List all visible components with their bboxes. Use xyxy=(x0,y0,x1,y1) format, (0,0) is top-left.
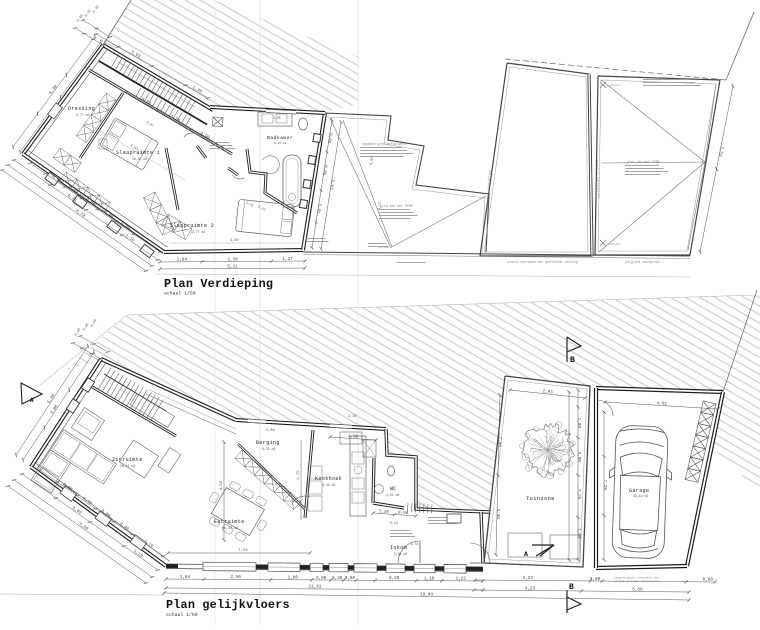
svg-text:plat dak met EPDM: plat dak met EPDM xyxy=(627,160,660,164)
svg-text:7,28: 7,28 xyxy=(602,480,607,491)
svg-text:9,32 m2: 9,32 m2 xyxy=(322,483,335,487)
svg-text:Berging: Berging xyxy=(256,440,280,446)
svg-text:1,05: 1,05 xyxy=(273,116,281,120)
svg-text:4,80: 4,80 xyxy=(230,239,239,243)
svg-text:1,75: 1,75 xyxy=(297,470,301,480)
svg-text:1,00: 1,00 xyxy=(576,418,581,429)
svg-text:Plan Verdieping: Plan Verdieping xyxy=(164,277,273,291)
svg-text:3,50: 3,50 xyxy=(495,509,500,520)
svg-text:aangestampte keerwand met: aangestampte keerwand met xyxy=(614,576,659,580)
svg-text:1,84: 1,84 xyxy=(180,575,191,580)
svg-text:stalen keerwand met gekleefde: stalen keerwand met gekleefde roofing xyxy=(507,260,578,264)
svg-text:2,88: 2,88 xyxy=(266,429,275,433)
svg-text:19,04: 19,04 xyxy=(420,592,433,597)
svg-text:B: B xyxy=(570,356,575,365)
svg-text:4,50: 4,50 xyxy=(220,480,224,490)
svg-text:1,80: 1,80 xyxy=(288,576,299,581)
svg-text:7,50: 7,50 xyxy=(497,437,502,448)
svg-text:opgaand gevelmetselwerk: opgaand gevelmetselwerk xyxy=(362,142,406,146)
svg-text:Slaapruimte 2: Slaapruimte 2 xyxy=(170,223,214,229)
svg-text:5,21: 5,21 xyxy=(227,264,238,269)
svg-text:0,20: 0,20 xyxy=(389,576,400,581)
svg-text:potgrond zandgrond: potgrond zandgrond xyxy=(625,260,660,264)
svg-text:WC: WC xyxy=(390,486,396,492)
svg-text:9,45 m2: 9,45 m2 xyxy=(274,142,287,145)
svg-text:7,25: 7,25 xyxy=(576,489,581,500)
svg-text:Badkamer: Badkamer xyxy=(267,135,293,141)
svg-text:3,00: 3,00 xyxy=(576,452,581,463)
svg-text:1,80: 1,80 xyxy=(576,528,581,539)
svg-text:0,80: 0,80 xyxy=(703,578,714,583)
svg-text:5,91 m2: 5,91 m2 xyxy=(394,552,407,556)
svg-text:4,63: 4,63 xyxy=(656,401,667,407)
svg-text:2,50: 2,50 xyxy=(231,575,242,580)
svg-text:grid dak met EPDM: grid dak met EPDM xyxy=(380,204,413,208)
svg-text:1,10: 1,10 xyxy=(424,577,435,582)
svg-text:0,90: 0,90 xyxy=(398,511,409,517)
svg-text:schaal 1/50: schaal 1/50 xyxy=(166,612,198,618)
svg-text:schaal 1/50: schaal 1/50 xyxy=(164,291,196,297)
svg-text:1,36: 1,36 xyxy=(348,434,359,440)
svg-text:1,27: 1,27 xyxy=(282,257,293,262)
svg-text:5,80: 5,80 xyxy=(632,587,643,592)
svg-text:12,77 m2: 12,77 m2 xyxy=(190,230,205,234)
svg-text:4,74: 4,74 xyxy=(410,543,418,547)
svg-text:Slaapruimte 1: Slaapruimte 1 xyxy=(116,150,160,156)
svg-text:0,14: 0,14 xyxy=(390,521,398,525)
svg-text:0,80: 0,80 xyxy=(590,577,601,582)
svg-text:1,94: 1,94 xyxy=(177,258,188,263)
svg-text:2,30: 2,30 xyxy=(227,257,238,262)
svg-text:Zitruimte: Zitruimte xyxy=(112,457,143,463)
svg-text:15,15 m2: 15,15 m2 xyxy=(222,527,238,531)
svg-text:5,00: 5,00 xyxy=(316,576,327,581)
svg-text:1,22: 1,22 xyxy=(456,577,467,582)
svg-text:A: A xyxy=(524,551,528,558)
svg-text:0,40: 0,40 xyxy=(332,576,343,581)
svg-text:1,36: 1,36 xyxy=(379,509,390,515)
svg-text:4,23: 4,23 xyxy=(523,576,534,581)
svg-text:1,91 m2: 1,91 m2 xyxy=(386,493,399,497)
svg-text:4,23: 4,23 xyxy=(525,586,536,591)
svg-text:11,81: 11,81 xyxy=(309,585,322,590)
svg-text:34,19 m2: 34,19 m2 xyxy=(633,494,648,498)
svg-text:+afvoer: +afvoer xyxy=(378,245,391,249)
svg-text:A: A xyxy=(30,397,34,404)
svg-text:Dressing: Dressing xyxy=(68,106,95,112)
svg-text:panlat gelegde drainering: panlat gelegde drainering xyxy=(614,579,659,583)
svg-text:+afvoer: +afvoer xyxy=(608,83,621,87)
svg-text:Eetruimte: Eetruimte xyxy=(214,519,245,525)
svg-text:2,36: 2,36 xyxy=(348,415,357,419)
svg-text:Inkom: Inkom xyxy=(390,545,407,551)
svg-text:5,77 m2: 5,77 m2 xyxy=(76,113,89,117)
svg-text:16,37 m2: 16,37 m2 xyxy=(132,157,147,161)
svg-text:30,11 m2: 30,11 m2 xyxy=(120,464,135,468)
svg-text:6,33 m2: 6,33 m2 xyxy=(262,447,275,451)
svg-text:7,50: 7,50 xyxy=(238,549,248,553)
svg-text:Kookhoek: Kookhoek xyxy=(315,476,342,482)
svg-text:0,60: 0,60 xyxy=(345,576,356,581)
svg-text:Plan gelijkvloers: Plan gelijkvloers xyxy=(166,598,290,612)
svg-text:Tuinzone: Tuinzone xyxy=(526,496,555,502)
